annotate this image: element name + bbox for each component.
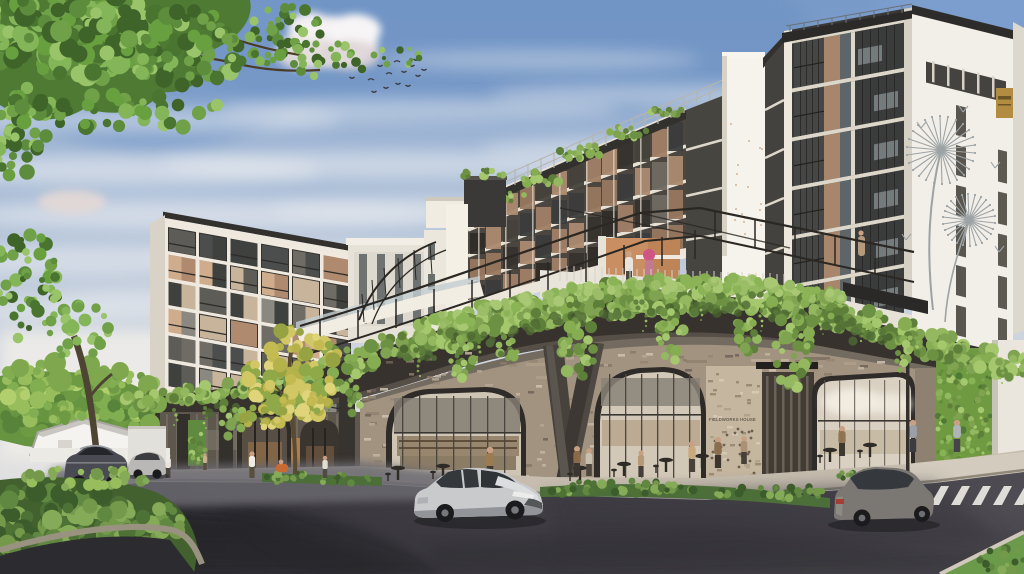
svg-text:FIELDWORKS HOUSE: FIELDWORKS HOUSE xyxy=(709,417,756,422)
